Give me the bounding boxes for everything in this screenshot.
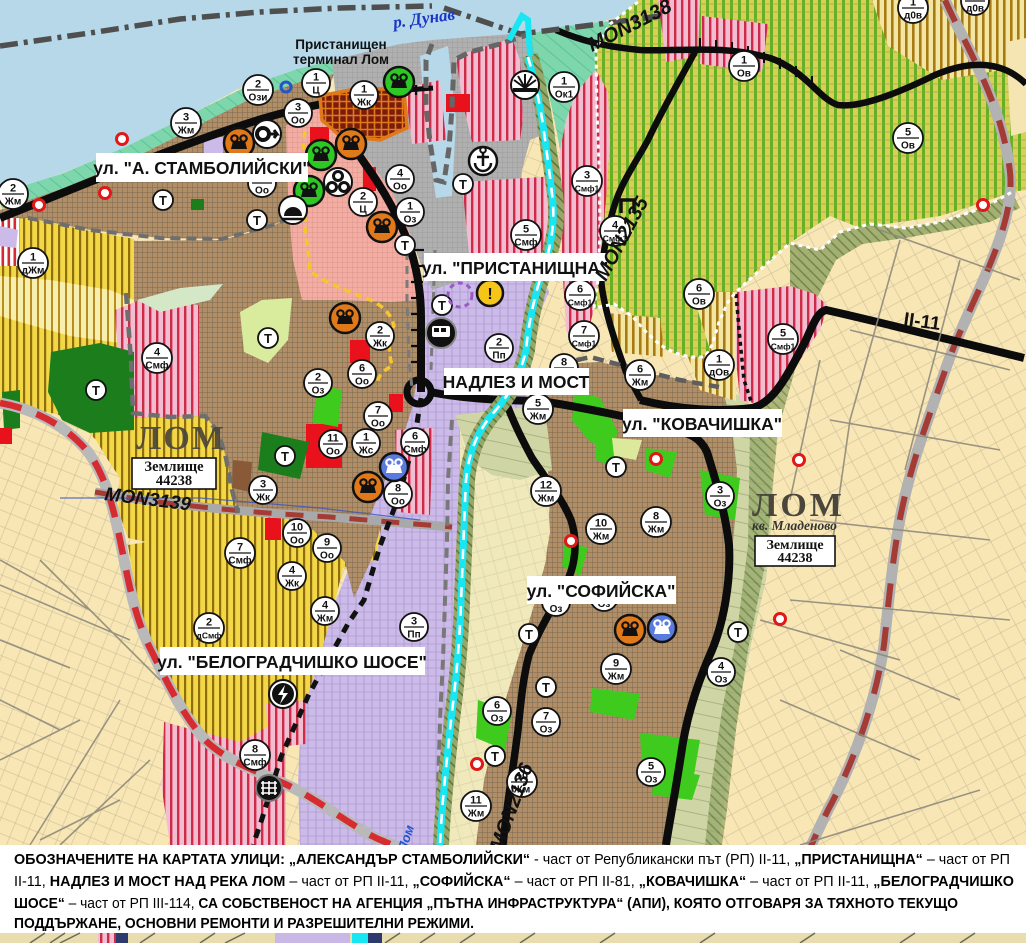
svg-text:Оо: Оо <box>393 182 407 193</box>
svg-text:9: 9 <box>613 658 619 670</box>
svg-text:5: 5 <box>535 398 541 410</box>
svg-text:10: 10 <box>291 522 303 534</box>
svg-text:Жс: Жс <box>358 446 374 457</box>
svg-text:6: 6 <box>359 363 365 375</box>
svg-text:8: 8 <box>395 483 401 495</box>
svg-text:Пп: Пп <box>492 351 505 362</box>
svg-text:Оз: Оз <box>714 499 727 510</box>
svg-text:Смф: Смф <box>514 237 537 249</box>
svg-text:2: 2 <box>206 617 212 629</box>
svg-text:Ов: Ов <box>901 141 915 152</box>
svg-text:7: 7 <box>237 542 243 554</box>
svg-text:T: T <box>253 213 261 228</box>
svg-text:Оз: Оз <box>715 675 728 686</box>
svg-text:ОБОЗНАЧЕНИТЕ НА КАРТАТА УЛИЦИ:: ОБОЗНАЧЕНИТЕ НА КАРТАТА УЛИЦИ: „АЛЕКСАНД… <box>14 850 1010 868</box>
svg-text:Смф: Смф <box>403 444 426 456</box>
svg-text:Оо: Оо <box>391 497 405 508</box>
svg-text:Ози: Ози <box>249 93 268 104</box>
svg-text:T: T <box>438 298 446 313</box>
svg-text:4: 4 <box>397 168 404 180</box>
svg-text:11: 11 <box>327 433 339 445</box>
svg-text:3: 3 <box>717 485 723 497</box>
svg-text:T: T <box>459 177 467 192</box>
svg-text:T: T <box>92 383 100 398</box>
svg-text:ул. "ПРИСТАНИЩНА": ул. "ПРИСТАНИЩНА" <box>422 258 609 278</box>
svg-text:Смф1: Смф1 <box>568 298 593 308</box>
svg-text:2: 2 <box>10 183 16 195</box>
svg-text:8: 8 <box>653 511 659 523</box>
svg-text:Пп: Пп <box>407 630 420 641</box>
svg-text:7: 7 <box>581 325 587 337</box>
svg-text:1: 1 <box>716 354 722 366</box>
svg-text:6: 6 <box>494 700 500 712</box>
svg-text:1: 1 <box>361 84 367 96</box>
svg-text:ЛОМ: ЛОМ <box>136 420 226 457</box>
svg-text:44238: 44238 <box>778 551 813 566</box>
svg-text:5: 5 <box>905 127 911 139</box>
svg-text:Жм: Жм <box>537 494 554 505</box>
svg-text:Смф: Смф <box>228 555 251 567</box>
svg-text:T: T <box>734 625 742 640</box>
svg-text:3: 3 <box>295 102 301 114</box>
svg-text:4: 4 <box>322 600 329 612</box>
svg-text:1: 1 <box>30 252 36 264</box>
svg-text:T: T <box>612 460 620 475</box>
svg-text:д0в: д0в <box>904 11 922 22</box>
svg-text:Оз: Оз <box>404 215 417 226</box>
svg-text:ул. "СОФИЙСКА": ул. "СОФИЙСКА" <box>527 580 676 601</box>
svg-text:Оз: Оз <box>540 725 553 736</box>
svg-text:Смф: Смф <box>243 757 266 769</box>
svg-text:2: 2 <box>496 337 502 349</box>
svg-text:Ов: Ов <box>737 69 751 80</box>
svg-text:Ц: Ц <box>312 86 320 97</box>
svg-text:3: 3 <box>411 616 417 628</box>
svg-text:5: 5 <box>780 328 786 340</box>
svg-text:Пристанищен: Пристанищен <box>295 37 386 52</box>
svg-text:2: 2 <box>255 79 261 91</box>
svg-text:Смф1: Смф1 <box>771 342 796 352</box>
svg-text:Жк: Жк <box>356 98 372 109</box>
svg-text:Смф1: Смф1 <box>575 184 600 194</box>
svg-text:2: 2 <box>377 325 383 337</box>
svg-text:4: 4 <box>718 661 725 673</box>
svg-text:ул. "КОВАЧИШКА": ул. "КОВАЧИШКА" <box>622 414 782 434</box>
svg-text:1: 1 <box>363 432 369 444</box>
svg-text:1: 1 <box>407 201 413 213</box>
svg-text:Оо: Оо <box>255 186 269 197</box>
svg-text:Жм: Жм <box>467 809 484 820</box>
svg-text:Оо: Оо <box>355 377 369 388</box>
svg-text:Смф: Смф <box>145 360 168 372</box>
svg-text:Оо: Оо <box>320 551 334 562</box>
svg-text:4: 4 <box>289 565 296 577</box>
svg-text:Ок1: Ок1 <box>555 90 574 101</box>
svg-text:6: 6 <box>637 364 643 376</box>
svg-text:ПОДДЪРЖАНЕ, ОСНОВНИ РЕМОНТИ И: ПОДДЪРЖАНЕ, ОСНОВНИ РЕМОНТИ И РАЗРЕШИТЕЛ… <box>14 915 474 932</box>
svg-text:Жк: Жк <box>284 579 300 590</box>
svg-text:дСмф: дСмф <box>196 631 222 641</box>
svg-text:3: 3 <box>584 170 590 182</box>
svg-text:11: 11 <box>470 795 482 807</box>
svg-text:T: T <box>401 238 409 253</box>
svg-text:Оо: Оо <box>290 536 304 547</box>
svg-text:Ов: Ов <box>692 297 706 308</box>
svg-text:T: T <box>542 680 550 695</box>
svg-text:1: 1 <box>561 76 567 88</box>
svg-text:1: 1 <box>741 55 747 67</box>
svg-text:ул. "БЕЛОГРАДЧИШКО ШОСЕ": ул. "БЕЛОГРАДЧИШКО ШОСЕ" <box>157 652 427 672</box>
svg-text:Оо: Оо <box>371 419 385 430</box>
svg-text:T: T <box>281 449 289 464</box>
svg-text:дОв: дОв <box>709 368 729 379</box>
svg-text:8: 8 <box>561 357 567 369</box>
svg-text:T: T <box>264 331 272 346</box>
svg-text:Жк: Жк <box>255 493 271 504</box>
svg-text:9: 9 <box>324 537 330 549</box>
svg-text:5: 5 <box>648 761 654 773</box>
svg-text:НАДЛЕЗ И МОСТ: НАДЛЕЗ И МОСТ <box>443 372 590 392</box>
svg-text:7: 7 <box>543 711 549 723</box>
svg-text:12: 12 <box>540 480 552 492</box>
svg-text:4: 4 <box>154 347 161 359</box>
svg-text:Оз: Оз <box>645 775 658 786</box>
svg-text:T: T <box>525 627 533 642</box>
svg-text:ШОСЕ“ – част от РП III-114, СА: ШОСЕ“ – част от РП III-114, СА СОБСТВЕНО… <box>14 895 958 912</box>
svg-text:терминал Лом: терминал Лом <box>293 52 389 67</box>
svg-text:дЖм: дЖм <box>22 266 45 277</box>
svg-text:1: 1 <box>910 0 916 9</box>
svg-text:Оз: Оз <box>312 386 325 397</box>
svg-text:Жм: Жм <box>592 532 609 543</box>
svg-text:3: 3 <box>260 479 266 491</box>
svg-text:6: 6 <box>412 431 418 443</box>
svg-text:2: 2 <box>315 372 321 384</box>
svg-text:Жм: Жм <box>4 197 21 208</box>
svg-text:Жм: Жм <box>607 672 624 683</box>
svg-text:Жм: Жм <box>631 378 648 389</box>
svg-text:10: 10 <box>595 518 607 530</box>
svg-text:кв. Младеново: кв. Младеново <box>752 518 837 533</box>
svg-text:!: ! <box>487 286 492 303</box>
svg-text:Жм: Жм <box>177 126 194 137</box>
svg-text:Смф1: Смф1 <box>572 339 597 349</box>
svg-text:2: 2 <box>360 191 366 203</box>
svg-text:44238: 44238 <box>156 473 192 489</box>
svg-text:8: 8 <box>252 744 258 756</box>
svg-text:Оо: Оо <box>326 447 340 458</box>
svg-text:Жм: Жм <box>529 412 546 423</box>
svg-text:1: 1 <box>972 0 978 2</box>
svg-text:Ц: Ц <box>359 205 367 216</box>
svg-text:ул. "А. СТАМБОЛИЙСКИ": ул. "А. СТАМБОЛИЙСКИ" <box>93 157 310 178</box>
svg-text:Оо: Оо <box>291 116 305 127</box>
svg-text:7: 7 <box>375 405 381 417</box>
svg-text:1: 1 <box>313 72 319 84</box>
svg-text:II-11, НАДЛЕЗ И МОСТ НАД РЕКА: II-11, НАДЛЕЗ И МОСТ НАД РЕКА ЛОМ – част… <box>14 872 1014 890</box>
svg-text:Жм: Жм <box>647 525 664 536</box>
svg-text:T: T <box>159 193 167 208</box>
svg-text:3: 3 <box>183 112 189 124</box>
svg-text:Жм: Жм <box>316 614 333 625</box>
svg-text:Жк: Жк <box>372 339 388 350</box>
svg-text:Оз: Оз <box>491 714 504 725</box>
svg-text:6: 6 <box>577 284 583 296</box>
svg-text:д0в: д0в <box>966 4 984 15</box>
svg-text:5: 5 <box>523 224 529 236</box>
svg-text:T: T <box>491 749 499 764</box>
svg-text:Оз: Оз <box>550 604 563 615</box>
svg-text:6: 6 <box>696 283 702 295</box>
